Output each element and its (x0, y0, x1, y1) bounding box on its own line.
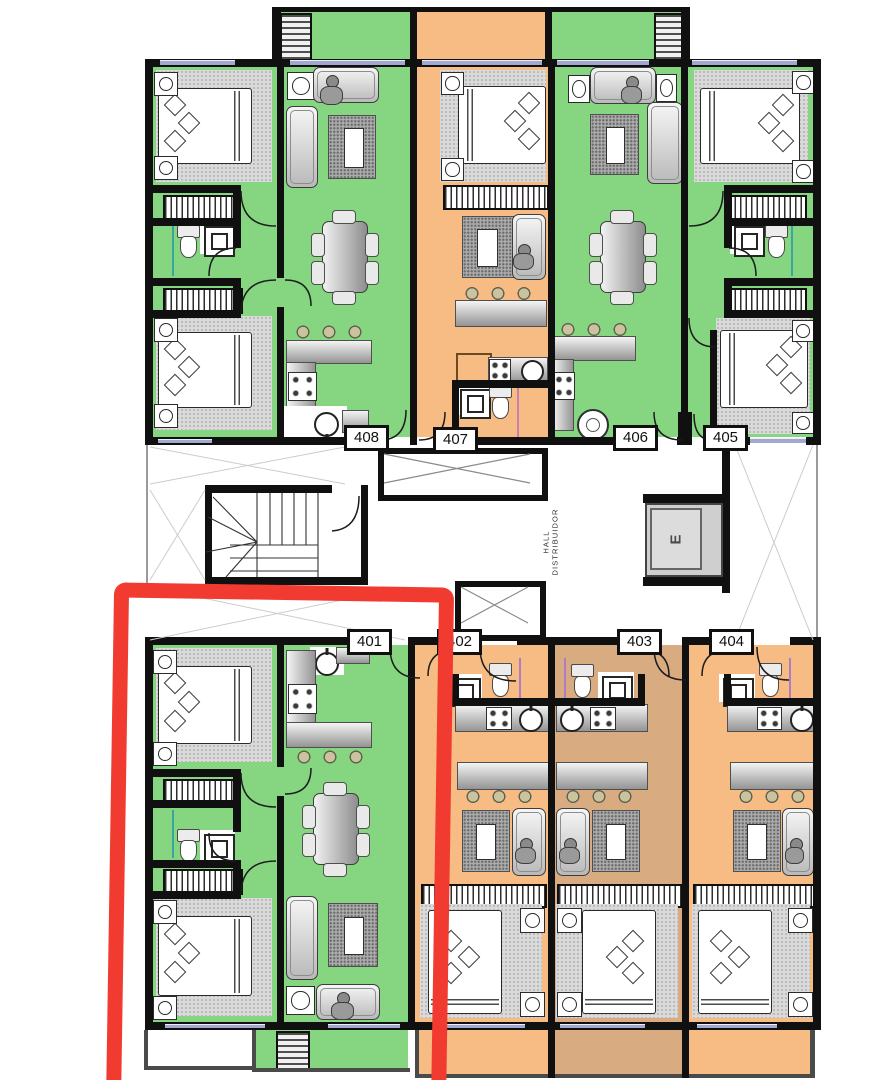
door-arc (689, 191, 723, 226)
stair-treads (206, 493, 318, 577)
door-arc (241, 191, 276, 226)
door-arc (332, 496, 359, 531)
unit-label-404: 404 (709, 629, 754, 655)
unit-label-405: 405 (703, 425, 748, 451)
door-arc (209, 248, 236, 276)
door-arc (729, 248, 756, 276)
unit-label-408: 408 (344, 425, 389, 451)
door-arc (285, 280, 311, 306)
door-arc (757, 647, 789, 680)
door-arc (241, 280, 276, 314)
door-arc (654, 412, 682, 440)
floor-plan: E HALL DISTRIBUIDOR (0, 0, 882, 1080)
unit-label-406: 406 (613, 425, 658, 451)
highlight-rectangle (106, 582, 454, 1080)
door-arc (689, 318, 716, 347)
door-arc (480, 647, 516, 681)
unit-label-407: 407 (433, 427, 478, 453)
unit-label-403: 403 (617, 629, 662, 655)
